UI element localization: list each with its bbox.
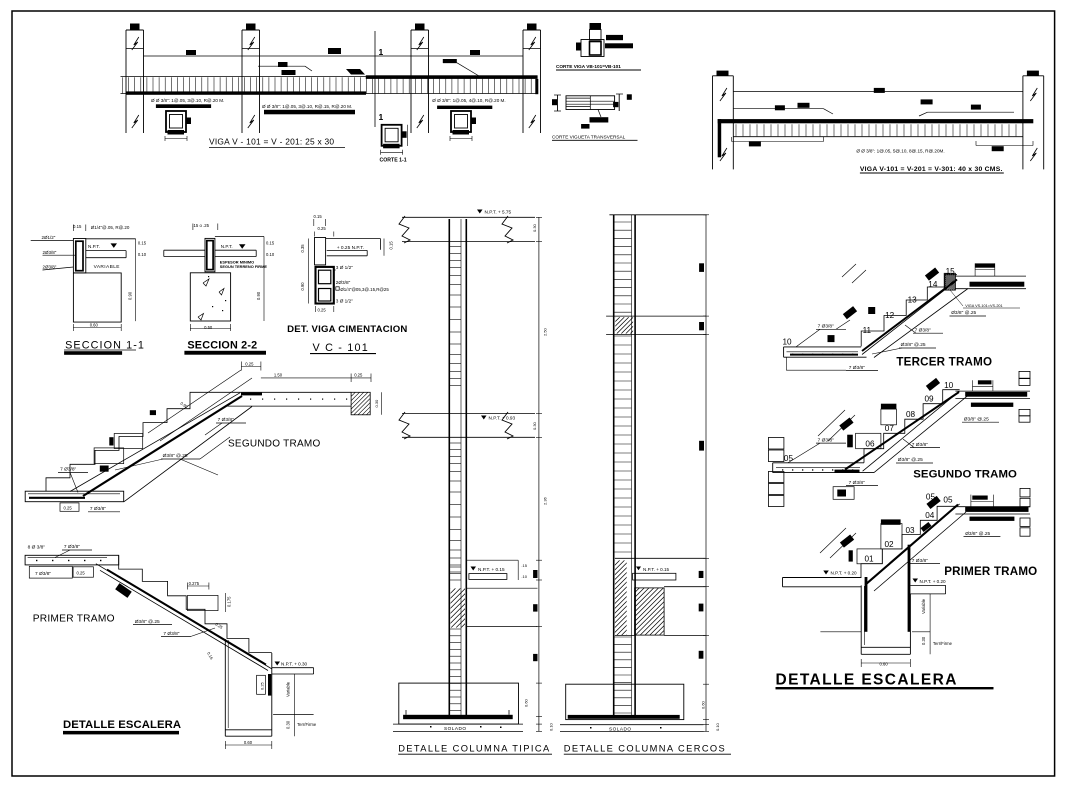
svg-text:VARIABLE: VARIABLE (94, 264, 120, 270)
svg-text:Ø Ø 3/8": 1@.05, 3@.10, R@.15,: Ø Ø 3/8": 1@.05, 3@.10, R@.15, R@.20 M. (262, 104, 352, 109)
svg-text:7 Ø3/8": 7 Ø3/8" (60, 467, 76, 473)
svg-text:DETALLE ESCALERA: DETALLE ESCALERA (63, 719, 181, 731)
svg-text:0.90: 0.90 (300, 282, 305, 291)
svg-text:05: 05 (784, 454, 794, 463)
svg-text:7 Ø3/8": 7 Ø3/8" (818, 324, 834, 330)
svg-text:7 Ø3/8": 7 Ø3/8" (818, 437, 834, 443)
svg-text:7 Ø3/8": 7 Ø3/8" (849, 480, 865, 486)
svg-text:N.P.T.: N.P.T. (221, 244, 233, 249)
svg-text:Ø1/4"@.05, R@.20: Ø1/4"@.05, R@.20 (91, 225, 130, 230)
svg-text:0.15: 0.15 (266, 240, 275, 245)
svg-text:09: 09 (925, 395, 935, 404)
svg-text:SOLADO: SOLADO (444, 726, 467, 731)
svg-text:DETALLE COLUMNA CERCOS: DETALLE COLUMNA CERCOS (564, 744, 726, 754)
svg-text:CORTE VIGUETA TRANSVERSAL: CORTE VIGUETA TRANSVERSAL (552, 134, 626, 139)
svg-text:Variable: Variable (286, 681, 291, 697)
svg-text:V C - 101: V C - 101 (313, 342, 369, 354)
svg-text:10: 10 (944, 381, 954, 390)
svg-text:0.25: 0.25 (318, 307, 327, 312)
svg-text:.15: .15 (521, 563, 527, 568)
svg-text:7 Ø3/8": 7 Ø3/8" (912, 558, 928, 564)
svg-text:SEGUNDO TRAMO: SEGUNDO TRAMO (913, 468, 1017, 480)
svg-text:0.25: 0.25 (354, 373, 363, 378)
svg-text:07: 07 (885, 424, 895, 433)
svg-text:1: 1 (379, 112, 384, 122)
svg-text:08: 08 (906, 410, 916, 419)
svg-text:05: 05 (943, 495, 953, 504)
svg-text:7 Ø3/8": 7 Ø3/8" (64, 544, 80, 550)
svg-text:0.60: 0.60 (880, 662, 889, 667)
svg-text:Ø3/8" @.25: Ø3/8" @.25 (901, 342, 926, 348)
svg-text:14: 14 (928, 280, 938, 289)
svg-text:13: 13 (908, 296, 918, 305)
svg-text:0.25: 0.25 (64, 506, 73, 511)
svg-text:Ø Ø 3/8": 1@.05, 3@.10, R@.20: Ø Ø 3/8": 1@.05, 3@.10, R@.20 M. (151, 98, 224, 103)
svg-text:0.10: 0.10 (715, 722, 720, 731)
svg-text:10: 10 (783, 338, 793, 347)
svg-text:7 Ø3/8": 7 Ø3/8" (90, 506, 106, 512)
svg-text:3 Ø 1/2": 3 Ø 1/2" (336, 298, 353, 303)
svg-text:0.30: 0.30 (532, 223, 537, 232)
svg-text:01: 01 (865, 555, 875, 564)
svg-text:Ø3/8" @.25: Ø3/8" @.25 (965, 531, 990, 537)
svg-text:0.15: 0.15 (389, 241, 394, 250)
svg-text:0.25: 0.25 (260, 681, 265, 690)
svg-text:N.P.T. + 0.20: N.P.T. + 0.20 (831, 570, 858, 575)
svg-text:0.16: 0.16 (206, 651, 215, 661)
svg-text:DET. VIGA CIMENTACION: DET. VIGA CIMENTACION (287, 324, 407, 335)
svg-text:PRIMER TRAMO: PRIMER TRAMO (944, 565, 1037, 578)
svg-text:2Ø1/2": 2Ø1/2" (42, 235, 56, 240)
svg-text:N.P.T. + 0.15: N.P.T. + 0.15 (478, 567, 505, 572)
svg-text:Ø3/8" @.25: Ø3/8" @.25 (135, 619, 160, 625)
svg-text:11: 11 (863, 326, 872, 335)
svg-text:Ø1/4"@05,3@.15,R@25: Ø1/4"@05,3@.15,R@25 (340, 287, 389, 292)
svg-text:CORTE VIGA VB-101=VB-101: CORTE VIGA VB-101=VB-101 (556, 64, 621, 69)
svg-text:N.P.T. + 0.15: N.P.T. + 0.15 (643, 567, 670, 572)
svg-text:3 Ø 1/2": 3 Ø 1/2" (336, 265, 353, 270)
svg-text:DETALLE COLUMNA TIPICA: DETALLE COLUMNA TIPICA (398, 744, 550, 754)
svg-text:VIGA VS-101=VS-201: VIGA VS-101=VS-201 (965, 304, 1002, 308)
svg-text:0.30: 0.30 (374, 399, 379, 408)
svg-text:0.30: 0.30 (286, 720, 291, 729)
svg-text:0.60: 0.60 (701, 700, 706, 709)
svg-text:0.90: 0.90 (128, 291, 133, 300)
svg-text:0.15: 0.15 (314, 214, 323, 219)
svg-text:N.P.T. + 0.30: N.P.T. + 0.30 (281, 661, 308, 666)
svg-text:Terr/Firme: Terr/Firme (297, 722, 317, 727)
svg-text:7 Ø3/8": 7 Ø3/8" (163, 631, 179, 637)
svg-text:03: 03 (906, 526, 916, 535)
svg-text:TERCER TRAMO: TERCER TRAMO (896, 356, 992, 369)
svg-text:SECCION 2-2: SECCION 2-2 (187, 340, 257, 352)
svg-text:06: 06 (865, 440, 875, 449)
svg-text:7 Ø3/8": 7 Ø3/8" (35, 571, 51, 577)
svg-text:SOLADO: SOLADO (609, 726, 632, 731)
svg-text:N.P.T. + 0.20: N.P.T. + 0.20 (920, 579, 947, 584)
svg-text:0.25: 0.25 (318, 226, 327, 231)
svg-text:Ø3/8" @.25: Ø3/8" @.25 (964, 417, 989, 423)
svg-text:0.60: 0.60 (244, 740, 253, 745)
svg-text:0.10: 0.10 (138, 252, 147, 257)
svg-text:0.25: 0.25 (245, 361, 254, 366)
svg-text:7 Ø3/8": 7 Ø3/8" (849, 365, 865, 371)
svg-text:VIGA V-101 = V-201 = V-301: 40: VIGA V-101 = V-201 = V-301: 40 x 30 CMS. (860, 166, 1003, 173)
svg-text:Ø Ø 3/8": 1@.05, 4@.10, R@.20: Ø Ø 3/8": 1@.05, 4@.10, R@.20 M. (432, 98, 505, 103)
svg-text:DETALLE ESCALERA: DETALLE ESCALERA (776, 672, 958, 689)
svg-text:.10: .10 (521, 574, 527, 579)
svg-text:2Ø3/8": 2Ø3/8" (336, 280, 351, 285)
svg-text:0.15: 0.15 (138, 241, 147, 246)
svg-text:7 Ø3/8": 7 Ø3/8" (915, 328, 931, 334)
svg-text:Terr/Firme: Terr/Firme (933, 641, 953, 646)
svg-text:2.36: 2.36 (543, 496, 548, 505)
svg-text:N.P.T. + 5.75: N.P.T. + 5.75 (485, 209, 512, 214)
svg-text:0.15: 0.15 (73, 224, 82, 229)
svg-text:0.275: 0.275 (189, 581, 200, 586)
svg-text:SEGUNDO TRAMO: SEGUNDO TRAMO (228, 439, 321, 450)
svg-text:0.10: 0.10 (549, 722, 554, 731)
svg-text:7 Ø3/8": 7 Ø3/8" (912, 442, 928, 448)
svg-text:0.30: 0.30 (921, 636, 926, 645)
svg-text:8 Ø 3/8": 8 Ø 3/8" (28, 545, 46, 551)
svg-text:02: 02 (885, 540, 895, 549)
svg-text:0.90: 0.90 (256, 291, 261, 300)
svg-text:2Ø3/8": 2Ø3/8" (43, 250, 57, 255)
svg-text:SECCION 1-1: SECCION 1-1 (65, 339, 145, 351)
svg-text:VIGA V - 101 = V - 201: 25 x 3: VIGA V - 101 = V - 201: 25 x 30 (209, 137, 334, 147)
svg-text:0.60: 0.60 (90, 323, 99, 328)
svg-text:12: 12 (885, 311, 895, 320)
svg-text:0.10: 0.10 (266, 252, 275, 257)
svg-text:N.P.T.: N.P.T. (88, 244, 100, 249)
svg-text:1: 1 (379, 47, 384, 57)
svg-text:0.30: 0.30 (532, 421, 537, 430)
svg-text:Ø3/8" @.25: Ø3/8" @.25 (951, 310, 976, 316)
svg-text:Variable: Variable (921, 598, 926, 614)
svg-text:Ø3/8" @.25: Ø3/8" @.25 (163, 453, 188, 459)
svg-text:CORTE 1-1: CORTE 1-1 (380, 158, 407, 164)
svg-text:SEGUN TERRENO FIRME: SEGUN TERRENO FIRME (220, 264, 268, 269)
svg-text:PRIMER TRAMO: PRIMER TRAMO (33, 614, 115, 625)
svg-text:0.50: 0.50 (204, 325, 213, 330)
svg-text:0.25: 0.25 (214, 622, 224, 631)
svg-text:7 Ø3/8": 7 Ø3/8" (218, 417, 234, 423)
svg-text:.15 o .25: .15 o .25 (192, 223, 209, 228)
svg-text:0.25: 0.25 (77, 570, 86, 575)
svg-text:N.P.T. + 0.93: N.P.T. + 0.93 (489, 415, 516, 420)
svg-text:2.50: 2.50 (543, 327, 548, 336)
svg-text:1.50: 1.50 (274, 373, 283, 378)
svg-text:04: 04 (925, 511, 935, 520)
svg-text:0.175: 0.175 (227, 596, 232, 607)
svg-text:0.60: 0.60 (524, 698, 529, 707)
svg-text:Ø3/8" @.25: Ø3/8" @.25 (898, 457, 923, 463)
svg-text:0.35: 0.35 (300, 244, 305, 253)
svg-text:Ø Ø 3/8": 1@.05, 5@.10, 8@.15,: Ø Ø 3/8": 1@.05, 5@.10, 8@.15, R@.20M. (856, 149, 944, 154)
